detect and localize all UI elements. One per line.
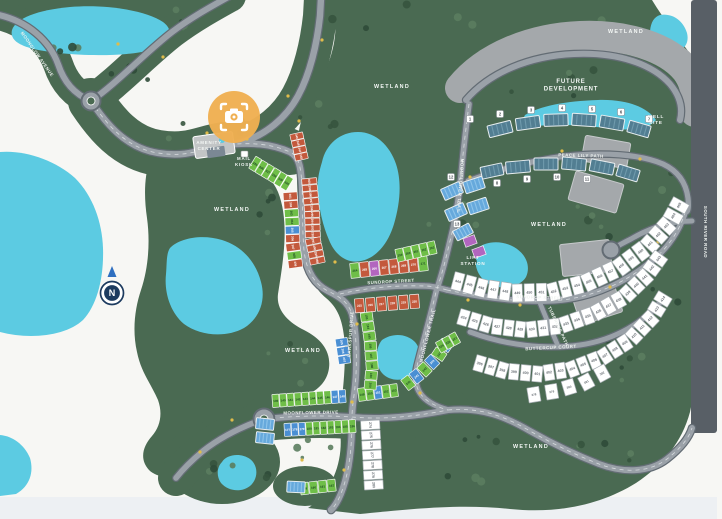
svg-text:143: 143 <box>303 397 309 401</box>
svg-text:139: 139 <box>273 399 279 403</box>
svg-text:295: 295 <box>310 212 314 217</box>
lot-378[interactable]: 378 <box>527 386 541 403</box>
lot-274[interactable]: 274 <box>361 420 380 430</box>
svg-text:379: 379 <box>549 389 555 394</box>
lot-379[interactable]: 379 <box>545 383 559 400</box>
svg-text:149: 149 <box>359 392 365 397</box>
lot-295[interactable]: 295 <box>305 211 320 217</box>
lot-147[interactable]: 147 <box>331 390 339 403</box>
svg-text:219: 219 <box>401 300 407 304</box>
svg-text:269: 269 <box>401 263 407 268</box>
lot-427[interactable]: 427 <box>491 318 503 335</box>
lot-145[interactable]: 145 <box>316 391 324 404</box>
svg-text:216: 216 <box>368 303 374 307</box>
svg-text:378: 378 <box>531 392 537 397</box>
lot-152[interactable]: 152 <box>382 385 391 399</box>
site-plan-svg: 3353363373383393403453463473483002992982… <box>0 0 722 519</box>
svg-text:302: 302 <box>289 202 293 208</box>
svg-text:183: 183 <box>328 425 334 429</box>
lot-153[interactable]: 153 <box>390 384 399 398</box>
svg-text:13: 13 <box>455 222 460 227</box>
svg-text:430: 430 <box>528 327 534 332</box>
svg-text:205: 205 <box>339 340 344 346</box>
wetland-label-1: WETLAND <box>374 84 410 90</box>
svg-text:403: 403 <box>557 368 564 373</box>
lot-400[interactable]: 400 <box>520 364 531 381</box>
lot-403[interactable]: 403 <box>554 362 566 379</box>
building-number-6[interactable]: 6 <box>618 109 625 116</box>
lot-217[interactable]: 217 <box>376 297 386 312</box>
svg-text:309: 309 <box>293 261 298 267</box>
svg-text:431: 431 <box>540 326 546 331</box>
lot-178[interactable]: 178 <box>291 423 298 436</box>
lot-199[interactable]: 199 <box>365 370 378 380</box>
building-number-13[interactable]: 13 <box>454 221 461 228</box>
svg-text:185: 185 <box>343 425 349 429</box>
lot-449[interactable]: 449 <box>512 284 523 302</box>
svg-text:179: 179 <box>299 427 305 431</box>
svg-text:429: 429 <box>517 327 523 332</box>
lot-149[interactable]: 149 <box>358 388 367 402</box>
building-number-2[interactable]: 2 <box>497 111 504 118</box>
lot-302[interactable]: 302 <box>284 200 299 209</box>
lot-294[interactable]: 294 <box>305 218 320 224</box>
lot-197[interactable]: 197 <box>365 351 378 361</box>
svg-text:399: 399 <box>511 370 517 375</box>
pond-bottom-left <box>218 455 257 490</box>
lot-301[interactable]: 301 <box>283 192 298 201</box>
lot-300[interactable]: 300 <box>302 178 317 185</box>
lot-180[interactable]: 180 <box>306 422 313 435</box>
svg-text:192: 192 <box>329 483 335 488</box>
lot-192[interactable]: 192 <box>327 479 336 492</box>
svg-text:264: 264 <box>352 268 358 273</box>
lot-278[interactable]: 278 <box>363 460 382 470</box>
svg-text:177: 177 <box>285 428 291 432</box>
svg-text:200: 200 <box>368 382 372 388</box>
svg-text:268: 268 <box>391 264 397 269</box>
svg-text:195: 195 <box>367 334 372 340</box>
lot-447[interactable]: 447 <box>487 280 500 299</box>
svg-text:305: 305 <box>290 228 294 233</box>
svg-text:10: 10 <box>555 175 560 180</box>
lot-266[interactable]: 266 <box>369 261 379 277</box>
svg-text:215: 215 <box>357 303 363 307</box>
townhome-teal-9[interactable] <box>534 158 558 170</box>
svg-text:141: 141 <box>288 398 294 402</box>
site-plan-map: 3353363373383393403453463473483002992982… <box>0 0 722 519</box>
svg-text:152: 152 <box>383 389 389 394</box>
svg-text:270: 270 <box>411 262 417 267</box>
svg-text:153: 153 <box>391 388 397 393</box>
lot-193[interactable]: 193 <box>360 312 373 323</box>
lot-275[interactable]: 275 <box>361 430 380 440</box>
svg-text:298: 298 <box>308 192 312 198</box>
svg-text:304: 304 <box>290 219 294 224</box>
lot-146[interactable]: 146 <box>324 391 332 404</box>
svg-text:190: 190 <box>311 485 317 490</box>
lot-220[interactable]: 220 <box>409 294 419 309</box>
svg-text:447: 447 <box>490 287 497 292</box>
lot-448[interactable]: 448 <box>499 282 512 301</box>
townhome-teal-3[interactable] <box>544 114 568 127</box>
lot-280[interactable]: 280 <box>364 480 383 490</box>
svg-text:145: 145 <box>317 396 323 400</box>
townhome-teal-10[interactable] <box>562 157 587 171</box>
building-number-3[interactable]: 3 <box>528 107 535 114</box>
lot-216[interactable]: 216 <box>365 297 375 312</box>
townhome-blue-8[interactable] <box>287 481 306 493</box>
svg-text:278: 278 <box>370 462 374 468</box>
lot-430[interactable]: 430 <box>526 321 538 338</box>
lot-304[interactable]: 304 <box>285 217 299 225</box>
mail-kiosk-label: MAILKIOSK <box>235 156 253 167</box>
svg-text:400: 400 <box>522 371 528 376</box>
lot-306[interactable]: 306 <box>286 234 300 242</box>
lot-401[interactable]: 401 <box>532 365 543 382</box>
svg-text:150: 150 <box>367 391 373 396</box>
lot-305[interactable]: 305 <box>285 226 299 234</box>
lot-279[interactable]: 279 <box>363 470 382 480</box>
svg-text:306: 306 <box>291 236 295 241</box>
svg-text:151: 151 <box>375 390 381 395</box>
svg-text:193: 193 <box>364 314 369 320</box>
lot-218[interactable]: 218 <box>387 296 397 311</box>
lot-184[interactable]: 184 <box>334 420 341 433</box>
lot-181[interactable]: 181 <box>313 422 320 435</box>
lot-194[interactable]: 194 <box>362 321 375 332</box>
building-number-1[interactable]: 1 <box>467 116 474 123</box>
well-site-label: WELLSITE <box>648 114 664 125</box>
svg-text:11: 11 <box>585 177 590 182</box>
svg-text:267: 267 <box>381 265 387 270</box>
svg-text:194: 194 <box>366 324 371 330</box>
lot-293[interactable]: 293 <box>305 225 320 231</box>
lot-296[interactable]: 296 <box>304 204 319 211</box>
svg-text:401: 401 <box>534 372 540 377</box>
lot-276[interactable]: 276 <box>362 440 381 450</box>
svg-text:140: 140 <box>280 398 286 402</box>
svg-text:184: 184 <box>335 425 341 429</box>
wetland-label-6: WETLAND <box>513 444 549 450</box>
svg-text:276: 276 <box>369 442 373 448</box>
svg-text:303: 303 <box>289 210 293 216</box>
svg-text:300: 300 <box>307 179 311 185</box>
svg-text:271: 271 <box>420 261 426 266</box>
lot-298[interactable]: 298 <box>303 191 318 198</box>
svg-text:308: 308 <box>292 253 297 259</box>
svg-text:297: 297 <box>309 199 313 205</box>
svg-text:402: 402 <box>546 370 553 375</box>
svg-text:198: 198 <box>370 363 374 369</box>
svg-text:N: N <box>109 288 116 298</box>
lot-428[interactable]: 428 <box>503 319 515 336</box>
svg-text:196: 196 <box>368 343 372 349</box>
lot-271[interactable]: 271 <box>418 256 428 272</box>
townhome-teal-4[interactable] <box>572 113 597 127</box>
lot-195[interactable]: 195 <box>363 331 376 342</box>
lot-198[interactable]: 198 <box>366 361 379 371</box>
svg-text:301: 301 <box>288 194 292 200</box>
lot-191[interactable]: 191 <box>318 480 327 493</box>
svg-text:197: 197 <box>369 353 373 359</box>
lot-139[interactable]: 139 <box>272 394 280 407</box>
lot-179[interactable]: 179 <box>298 422 305 435</box>
lot-215[interactable]: 215 <box>354 298 364 313</box>
street-label-south-river-road-10: SOUTH RIVER ROAD <box>703 206 708 258</box>
svg-text:279: 279 <box>371 472 375 478</box>
lot-140[interactable]: 140 <box>279 394 287 407</box>
svg-text:296: 296 <box>309 205 313 211</box>
svg-text:274: 274 <box>368 422 372 428</box>
svg-text:178: 178 <box>292 427 298 431</box>
svg-text:280: 280 <box>371 482 375 488</box>
townhome-teal-8[interactable] <box>506 160 531 174</box>
svg-text:182: 182 <box>321 426 327 430</box>
wetland-label-3: WETLAND <box>214 207 250 213</box>
svg-text:293: 293 <box>310 225 314 230</box>
svg-text:181: 181 <box>314 426 320 430</box>
lot-177[interactable]: 177 <box>284 423 291 436</box>
wetland-label-4: WETLAND <box>285 348 321 354</box>
amenity-center-label: AMENITYCENTER <box>196 140 221 151</box>
lot-431[interactable]: 431 <box>537 319 549 336</box>
svg-text:146: 146 <box>325 395 331 399</box>
camera-360-marker[interactable] <box>208 91 260 143</box>
lot-429[interactable]: 429 <box>514 321 526 338</box>
lot-190[interactable]: 190 <box>309 481 318 494</box>
lot-196[interactable]: 196 <box>364 341 377 351</box>
lot-219[interactable]: 219 <box>398 295 408 310</box>
lot-200[interactable]: 200 <box>364 380 377 390</box>
lot-399[interactable]: 399 <box>508 363 519 380</box>
svg-text:217: 217 <box>379 302 385 306</box>
lot-143[interactable]: 143 <box>301 392 309 405</box>
svg-text:191: 191 <box>320 484 326 489</box>
lot-307[interactable]: 307 <box>286 242 301 252</box>
svg-text:186: 186 <box>350 424 356 428</box>
svg-text:148: 148 <box>340 394 346 398</box>
building-number-8[interactable]: 8 <box>494 180 501 187</box>
svg-text:206: 206 <box>341 348 346 354</box>
lot-277[interactable]: 277 <box>362 450 381 460</box>
svg-text:292: 292 <box>311 232 315 237</box>
svg-text:12: 12 <box>449 175 454 180</box>
svg-text:218: 218 <box>390 301 396 305</box>
lot-265[interactable]: 265 <box>359 262 369 278</box>
lot-308[interactable]: 308 <box>287 251 302 261</box>
townhome-blue-6[interactable] <box>255 418 274 431</box>
svg-text:147: 147 <box>332 395 338 399</box>
building-number-10[interactable]: 10 <box>554 174 561 181</box>
svg-text:180: 180 <box>307 427 313 431</box>
lot-186[interactable]: 186 <box>349 420 356 433</box>
svg-text:220: 220 <box>412 299 418 303</box>
svg-text:299: 299 <box>308 185 312 191</box>
building-number-4[interactable]: 4 <box>559 105 566 112</box>
lot-183[interactable]: 183 <box>327 421 334 434</box>
lot-185[interactable]: 185 <box>342 420 349 433</box>
lot-303[interactable]: 303 <box>284 209 299 218</box>
svg-text:144: 144 <box>310 396 316 400</box>
svg-text:294: 294 <box>310 219 314 224</box>
building-number-9[interactable]: 9 <box>524 176 531 183</box>
building-number-12[interactable]: 12 <box>448 174 455 181</box>
lot-297[interactable]: 297 <box>303 198 318 205</box>
svg-text:265: 265 <box>362 267 368 272</box>
svg-text:307: 307 <box>291 244 296 250</box>
svg-text:266: 266 <box>372 266 378 271</box>
svg-text:451: 451 <box>538 290 544 294</box>
svg-text:427: 427 <box>494 324 500 329</box>
svg-text:275: 275 <box>369 432 373 438</box>
lot-142[interactable]: 142 <box>294 393 302 406</box>
lot-309[interactable]: 309 <box>288 259 303 269</box>
townhome-blue-7[interactable] <box>255 432 274 445</box>
lot-141[interactable]: 141 <box>287 393 295 406</box>
lot-144[interactable]: 144 <box>309 392 317 405</box>
svg-text:207: 207 <box>342 357 347 363</box>
svg-text:428: 428 <box>505 326 511 331</box>
wetland-label-5: WETLAND <box>531 222 567 228</box>
svg-text:142: 142 <box>295 397 301 401</box>
svg-text:448: 448 <box>502 289 509 294</box>
lot-264[interactable]: 264 <box>350 263 360 279</box>
lot-267[interactable]: 267 <box>379 260 389 276</box>
svg-text:199: 199 <box>369 373 373 379</box>
building-number-11[interactable]: 11 <box>584 176 591 183</box>
lot-402[interactable]: 402 <box>543 364 555 381</box>
lot-182[interactable]: 182 <box>320 421 327 434</box>
building-number-5[interactable]: 5 <box>589 106 596 113</box>
lot-299[interactable]: 299 <box>302 184 317 191</box>
wetland-label-2: WETLAND <box>608 29 644 35</box>
svg-text:277: 277 <box>370 452 374 458</box>
lot-148[interactable]: 148 <box>338 390 346 403</box>
street-label-moonflower-drive-5: MOONFLOWER DRIVE <box>283 410 338 416</box>
